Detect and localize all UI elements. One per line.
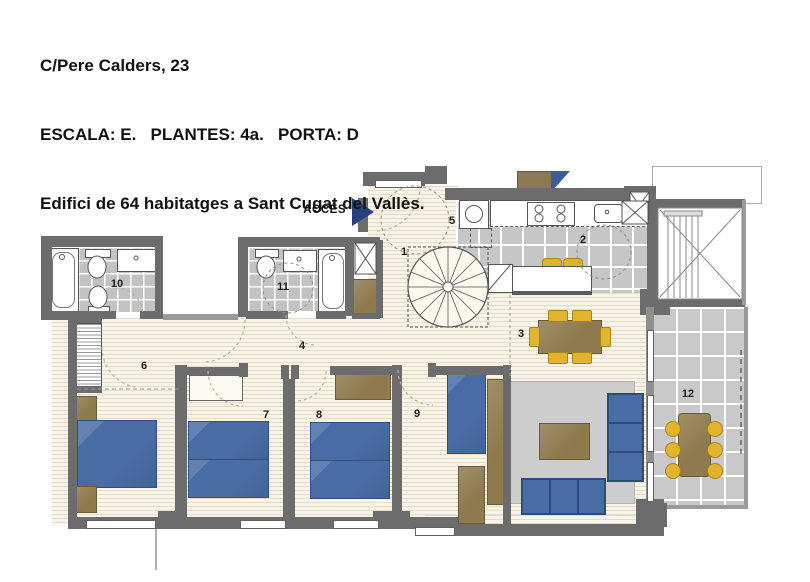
wardrobe bbox=[458, 466, 485, 524]
room-label-kitchen: 2 bbox=[580, 234, 586, 246]
building-description-line: Edifici de 64 habitatges a Sant Cugat de… bbox=[40, 192, 425, 215]
wall bbox=[428, 363, 436, 377]
room-label-terrace-12: 12 bbox=[682, 388, 694, 400]
address-line: C/Pere Calders, 23 bbox=[40, 54, 425, 77]
room-label-living: 3 bbox=[518, 328, 524, 340]
dining-chair bbox=[529, 327, 540, 347]
window bbox=[86, 520, 156, 529]
terrace-chair bbox=[665, 442, 681, 458]
terrace-table bbox=[678, 413, 711, 477]
plan-header: C/Pere Calders, 23 ESCALA: E. PLANTES: 4… bbox=[40, 8, 425, 261]
room-label-bathroom-10: 10 bbox=[111, 278, 123, 290]
step bbox=[488, 264, 513, 293]
room-label-laundry: 5 bbox=[449, 215, 455, 227]
stair-treads bbox=[664, 211, 702, 298]
coffee-table bbox=[539, 423, 590, 460]
wall bbox=[352, 313, 380, 319]
wall bbox=[392, 365, 402, 517]
wall bbox=[187, 367, 239, 375]
double-bed bbox=[310, 460, 390, 499]
glass-door bbox=[647, 395, 654, 452]
room-label-bedroom-9: 9 bbox=[414, 408, 420, 420]
window bbox=[333, 520, 379, 529]
stove bbox=[527, 202, 575, 226]
terrace-chair bbox=[665, 421, 681, 437]
scale-plant-door-line: ESCALA: E. PLANTES: 4a. PORTA: D bbox=[40, 123, 425, 146]
dresser bbox=[335, 372, 391, 400]
wall bbox=[283, 379, 295, 517]
wall bbox=[636, 499, 664, 529]
floor-plan-page: C/Pere Calders, 23 ESCALA: E. PLANTES: 4… bbox=[0, 0, 810, 582]
sofa bbox=[521, 478, 606, 515]
window bbox=[415, 527, 455, 536]
wall bbox=[71, 316, 102, 323]
wall bbox=[425, 166, 447, 184]
double-bed bbox=[188, 421, 269, 460]
dining-chair bbox=[548, 310, 568, 322]
room-label-bathroom-11: 11 bbox=[277, 281, 289, 293]
wall bbox=[655, 199, 745, 208]
closet-niche bbox=[189, 375, 243, 401]
wall bbox=[246, 311, 288, 319]
wall bbox=[239, 363, 248, 377]
dining-chair bbox=[548, 352, 568, 364]
kitchen-sink bbox=[594, 204, 623, 223]
floor-terrace bbox=[652, 307, 746, 507]
breakfast-bar bbox=[512, 266, 592, 295]
wall bbox=[281, 365, 289, 379]
wall bbox=[503, 365, 511, 524]
bathtub-basin bbox=[322, 253, 344, 309]
wall bbox=[650, 199, 658, 299]
terrace-chair bbox=[707, 463, 723, 479]
wall bbox=[68, 318, 77, 524]
single-bed bbox=[447, 371, 486, 454]
dining-chair bbox=[600, 327, 611, 347]
window bbox=[240, 520, 286, 529]
wall bbox=[655, 299, 745, 307]
wall bbox=[316, 311, 346, 319]
washing-machine-drum bbox=[465, 205, 483, 223]
wall bbox=[140, 311, 163, 319]
sofa bbox=[607, 393, 644, 482]
dishwasher bbox=[470, 228, 492, 248]
double-bed bbox=[310, 422, 390, 461]
glass-door bbox=[647, 462, 654, 502]
room-label-bedroom-6: 6 bbox=[141, 360, 147, 372]
wall bbox=[71, 386, 102, 393]
room-label-bedroom-7: 7 bbox=[263, 409, 269, 421]
dining-table bbox=[538, 320, 602, 354]
glass-door bbox=[647, 330, 654, 382]
terrace-railing bbox=[744, 307, 748, 509]
double-bed bbox=[188, 459, 269, 498]
dining-chair bbox=[572, 310, 592, 322]
double-bed bbox=[77, 420, 157, 488]
room-label-corridor: 4 bbox=[299, 340, 305, 352]
room-label-bedroom-8: 8 bbox=[316, 409, 322, 421]
wall bbox=[330, 366, 392, 375]
terrace-chair bbox=[665, 463, 681, 479]
wall bbox=[742, 200, 746, 305]
terrace-chair bbox=[707, 442, 723, 458]
terrace-chair bbox=[707, 421, 723, 437]
wall bbox=[291, 365, 299, 379]
wall bbox=[436, 366, 508, 375]
washing-machine bbox=[459, 200, 489, 229]
dining-chair bbox=[572, 352, 592, 364]
wall bbox=[175, 365, 187, 517]
wall bbox=[420, 524, 664, 536]
wall bbox=[163, 314, 238, 320]
